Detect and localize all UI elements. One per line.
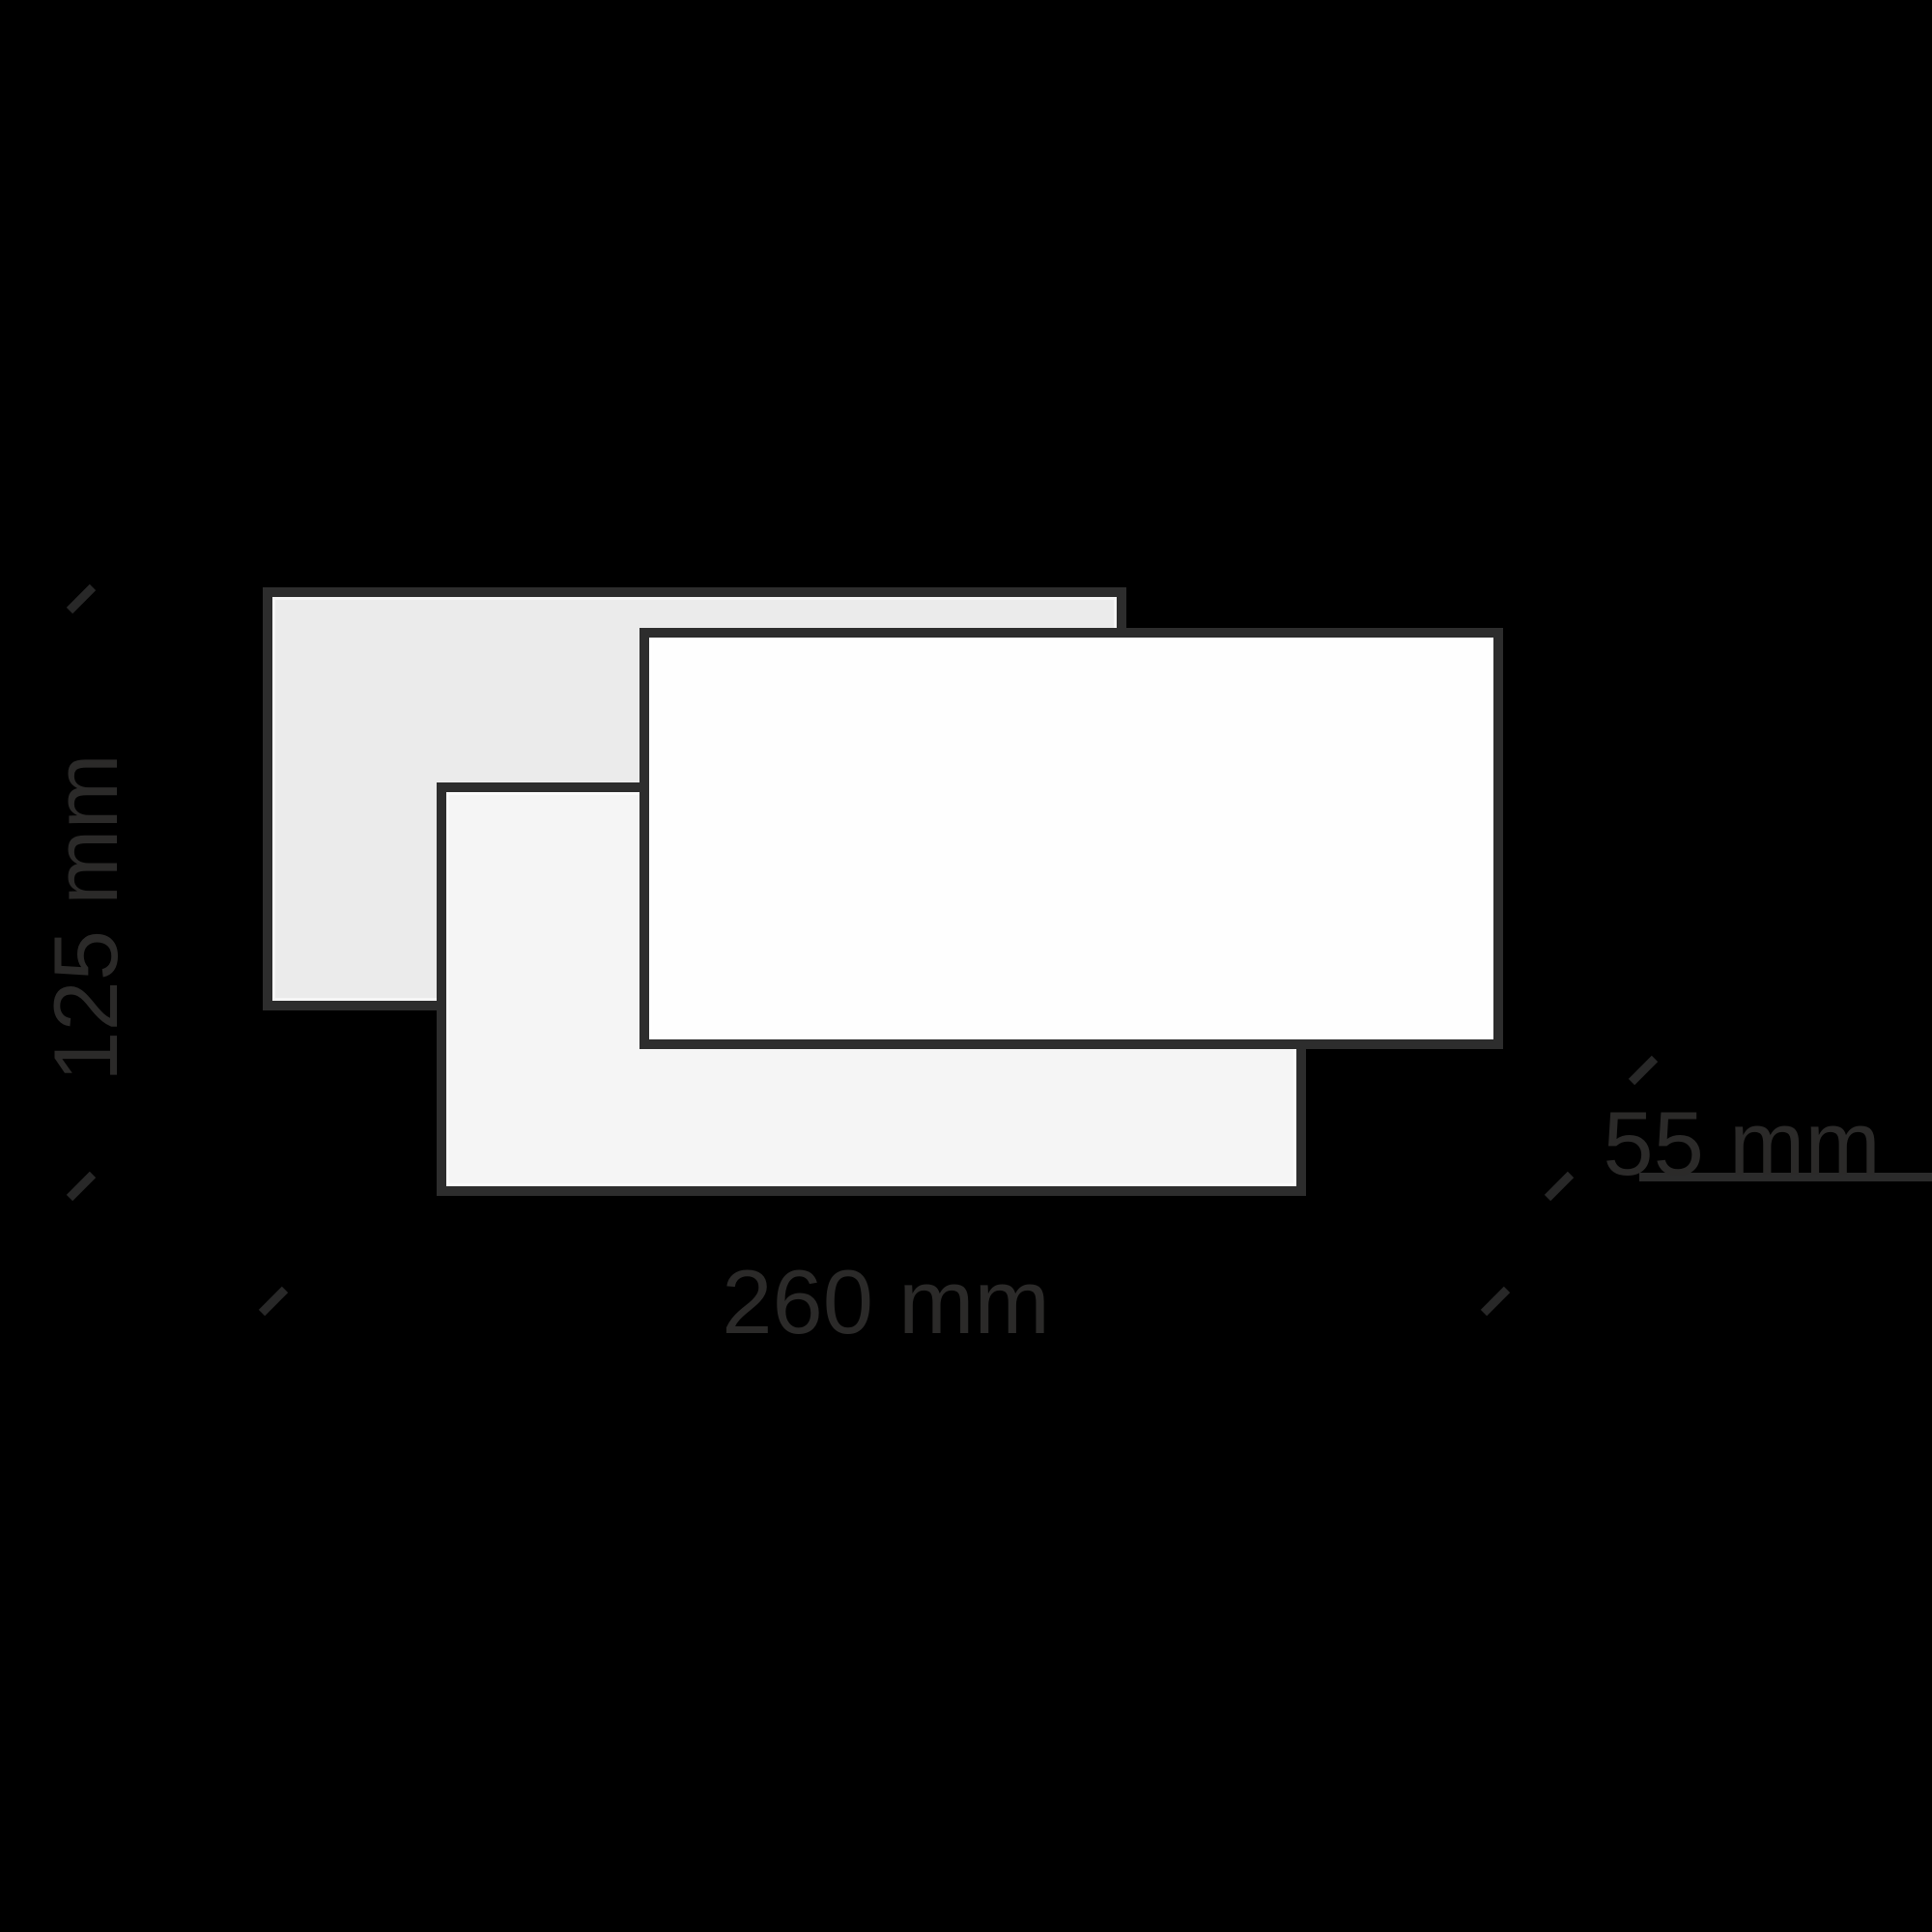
dimension-tick-depth-top (1629, 1056, 1658, 1085)
front-panel (639, 628, 1503, 1049)
dimension-diagram: 125 mm 260 mm 55 mm (0, 0, 1932, 1932)
width-dimension-label: 260 mm (722, 1257, 1050, 1348)
dimension-tick-depth-bottom (1545, 1172, 1574, 1201)
depth-dimension-label: 55 mm (1603, 1098, 1880, 1189)
height-dimension-label: 125 mm (41, 753, 131, 1082)
dimension-tick-width-right (1481, 1287, 1510, 1316)
dimension-tick-height-top (67, 584, 96, 613)
dimension-tick-height-bottom (67, 1172, 96, 1201)
dimension-tick-width-left (259, 1287, 288, 1316)
